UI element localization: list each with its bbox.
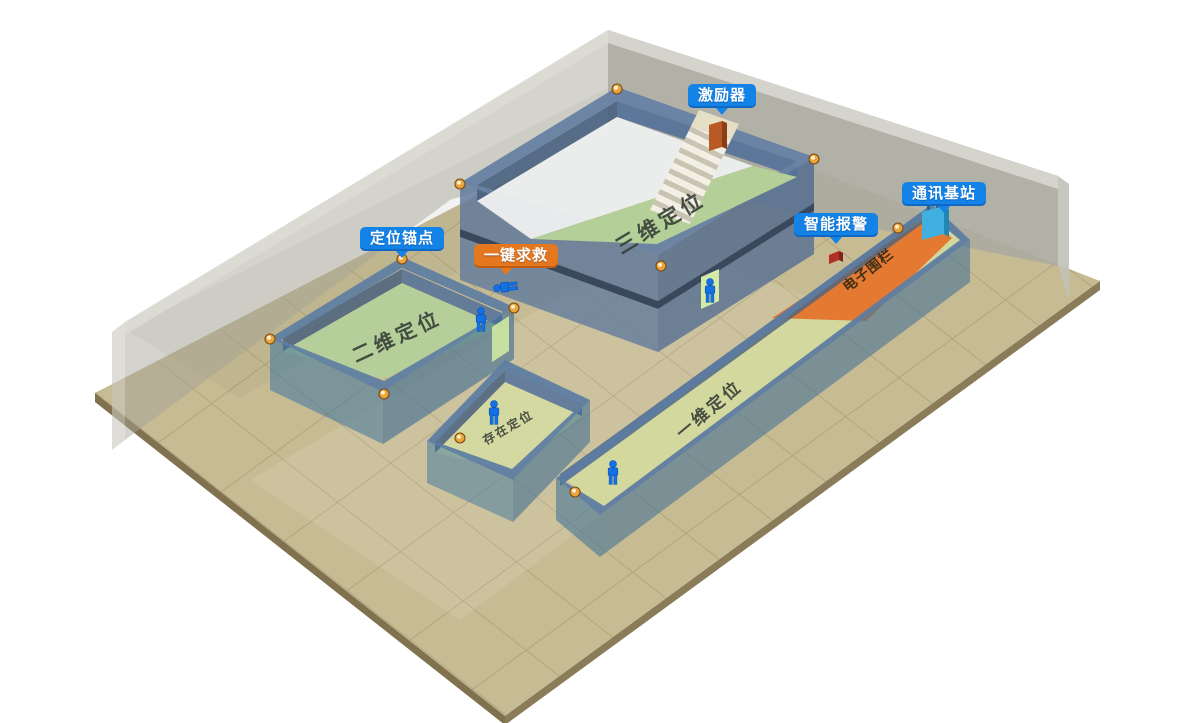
exciter-device-icon	[709, 121, 727, 151]
callout-exciter[interactable]: 激励器	[688, 84, 756, 108]
callout-one-key-sos[interactable]: 一键求救	[474, 244, 558, 268]
indoor-positioning-3d-scene: 三维定位 二维定位 存在定位 一维定位 电子围栏 激励器 通讯基站 智能报警 定…	[0, 0, 1200, 723]
anchor-node-icon	[265, 334, 275, 344]
anchor-node-icon	[455, 433, 465, 443]
callout-positioning-anchor[interactable]: 定位锚点	[360, 227, 444, 251]
anchor-node-icon	[809, 154, 819, 164]
callout-smart-alarm[interactable]: 智能报警	[794, 213, 878, 237]
scene-canvas	[0, 0, 1200, 723]
anchor-node-icon	[379, 389, 389, 399]
anchor-node-icon	[570, 487, 580, 497]
back-wall-left-edge	[112, 322, 125, 450]
callout-comm-base-station[interactable]: 通讯基站	[902, 182, 986, 206]
anchor-node-icon	[893, 223, 903, 233]
anchor-node-icon	[455, 179, 465, 189]
anchor-node-icon	[656, 261, 666, 271]
anchor-node-icon	[509, 303, 519, 313]
anchor-node-icon	[612, 84, 622, 94]
